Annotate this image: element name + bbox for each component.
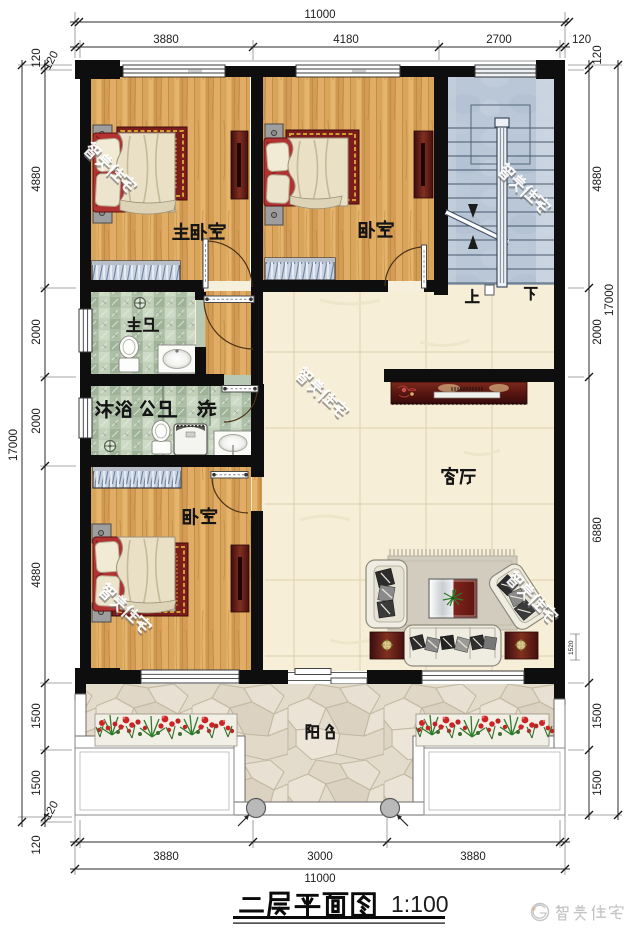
svg-text:120: 120 — [42, 49, 62, 72]
svg-text:2000: 2000 — [31, 319, 43, 345]
svg-text:1500: 1500 — [592, 703, 604, 729]
svg-text:6880: 6880 — [592, 517, 604, 543]
svg-text:3880: 3880 — [460, 851, 486, 863]
svg-text:1500: 1500 — [592, 770, 604, 796]
svg-text:4880: 4880 — [31, 166, 43, 192]
svg-text:4880: 4880 — [592, 166, 604, 192]
svg-text:3000: 3000 — [307, 851, 333, 863]
svg-text:1:100: 1:100 — [391, 891, 449, 917]
svg-text:120: 120 — [31, 48, 43, 67]
svg-text:4880: 4880 — [31, 562, 43, 588]
svg-text:17000: 17000 — [8, 429, 20, 461]
svg-text:1500: 1500 — [31, 703, 43, 729]
svg-text:3880: 3880 — [153, 851, 179, 863]
svg-text:11000: 11000 — [304, 9, 335, 21]
svg-text:120: 120 — [31, 835, 43, 854]
svg-text:17000: 17000 — [604, 284, 616, 316]
svg-text:2000: 2000 — [31, 408, 43, 434]
svg-text:1520: 1520 — [568, 640, 575, 655]
svg-text:11000: 11000 — [304, 873, 335, 885]
svg-text:1500: 1500 — [31, 770, 43, 796]
svg-text:2700: 2700 — [486, 34, 512, 46]
svg-text:120: 120 — [42, 799, 62, 822]
svg-text:4180: 4180 — [333, 34, 359, 46]
svg-text:3880: 3880 — [153, 34, 179, 46]
svg-text:120: 120 — [572, 34, 591, 46]
svg-text:2000: 2000 — [592, 319, 604, 345]
svg-text:120: 120 — [592, 45, 604, 64]
